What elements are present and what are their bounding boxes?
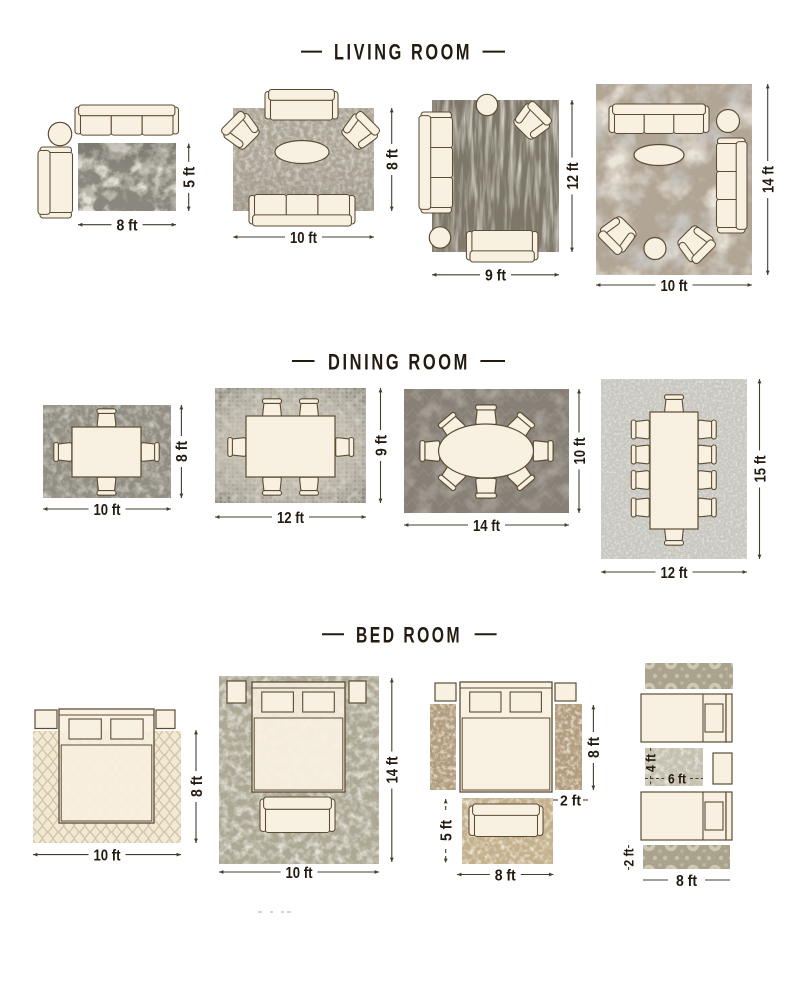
svg-text:14 ft: 14 ft [385,756,402,784]
svg-text:8 ft: 8 ft [586,736,603,758]
svg-text:10 ft: 10 ft [661,278,689,295]
svg-text:BED ROOM: BED ROOM [356,623,462,648]
svg-text:8 ft: 8 ft [495,867,517,884]
svg-text:10 ft: 10 ft [572,437,589,465]
svg-text:10 ft: 10 ft [286,865,314,882]
svg-text:9 ft: 9 ft [485,268,507,285]
svg-text:5 ft: 5 ft [182,166,199,188]
svg-text:2 ft: 2 ft [560,792,581,809]
svg-text:15 ft: 15 ft [752,455,769,483]
svg-text:10 ft: 10 ft [94,502,122,519]
svg-text:9 ft: 9 ft [373,434,390,456]
svg-text:LIVING ROOM: LIVING ROOM [334,40,472,65]
svg-text:8 ft: 8 ft [676,873,698,890]
svg-text:DINING ROOM: DINING ROOM [328,349,470,374]
svg-text:14 ft: 14 ft [761,165,778,193]
svg-text:8 ft: 8 ft [174,440,191,462]
svg-text:14 ft: 14 ft [473,518,501,535]
svg-text:12 ft: 12 ft [277,510,305,527]
svg-text:10 ft: 10 ft [94,847,122,864]
svg-text:12 ft: 12 ft [565,162,582,190]
svg-text:5 ft: 5 ft [439,819,456,841]
svg-text:8 ft: 8 ft [385,148,402,170]
svg-text:4 ft: 4 ft [643,754,659,772]
svg-text:8 ft: 8 ft [117,218,139,235]
svg-text:12 ft: 12 ft [661,565,689,582]
svg-text:8 ft: 8 ft [189,775,206,797]
svg-text:6 ft: 6 ft [668,771,686,787]
svg-text:10 ft: 10 ft [290,230,318,247]
svg-text:2 ft: 2 ft [621,848,637,866]
